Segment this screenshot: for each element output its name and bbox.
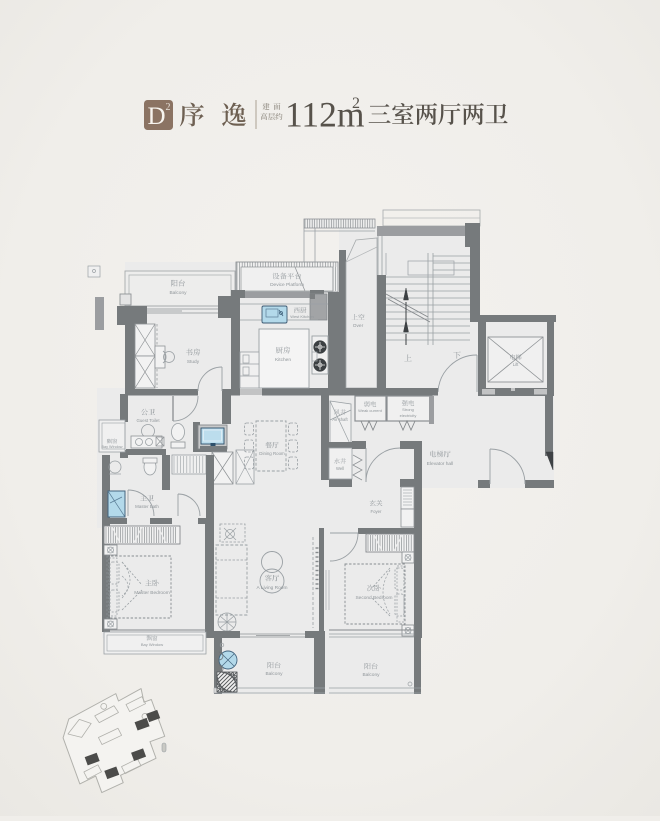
- svg-text:D: D: [147, 103, 165, 130]
- svg-text:Balcony: Balcony: [362, 672, 380, 678]
- svg-text:A Living Room: A Living Room: [257, 585, 288, 591]
- svg-text:Lift: Lift: [513, 362, 519, 367]
- svg-text:Over: Over: [353, 323, 364, 329]
- svg-text:Master Bedroom: Master Bedroom: [134, 590, 169, 596]
- svg-text:Foyer: Foyer: [371, 509, 383, 514]
- svg-text:Bay Window: Bay Window: [141, 642, 163, 647]
- svg-text:Dining Room: Dining Room: [259, 451, 285, 456]
- svg-text:2: 2: [166, 102, 171, 113]
- svg-text:Elevator hall: Elevator hall: [427, 461, 453, 467]
- svg-text:Strong: Strong: [402, 407, 414, 412]
- svg-text:Guest Toilet: Guest Toilet: [136, 418, 160, 423]
- svg-text:Balcony: Balcony: [265, 671, 283, 677]
- svg-text:Second Bedroom: Second Bedroom: [355, 595, 392, 601]
- svg-text:Weak current: Weak current: [358, 408, 383, 413]
- svg-text:Study: Study: [187, 359, 200, 365]
- svg-text:Air shaft: Air shaft: [332, 417, 348, 422]
- svg-text:2: 2: [352, 95, 360, 112]
- svg-text:Kitchen: Kitchen: [275, 357, 291, 363]
- svg-text:West Kitchen: West Kitchen: [290, 314, 314, 319]
- svg-text:Balcony: Balcony: [169, 290, 187, 296]
- svg-text:Master Bath: Master Bath: [135, 504, 159, 509]
- svg-text:Device Platform: Device Platform: [270, 282, 304, 288]
- svg-text:electricity: electricity: [400, 413, 417, 418]
- svg-text:Bay Window: Bay Window: [101, 445, 122, 449]
- svg-text:Well: Well: [336, 466, 344, 471]
